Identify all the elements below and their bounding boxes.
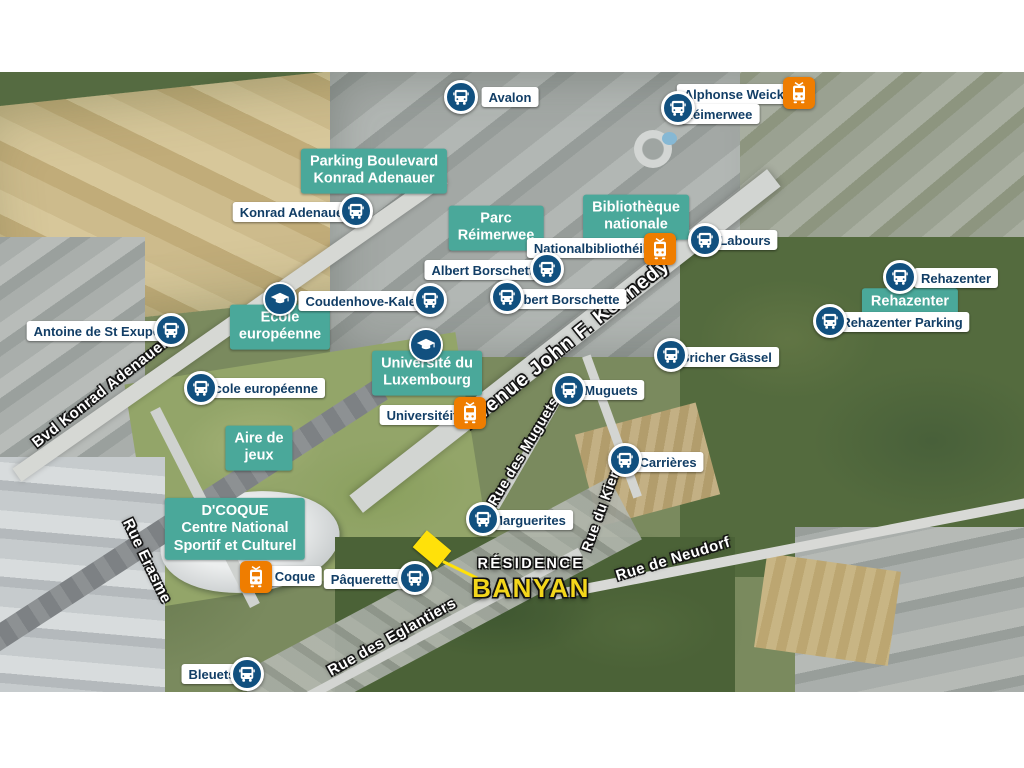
poi-label-bibliotheque-nationale: Bibliothèque nationale <box>583 195 689 240</box>
poi-line: Centre National <box>174 520 296 537</box>
bus-glyph <box>161 320 181 340</box>
poi-label-aire-de-jeux: Aire de jeux <box>225 426 292 471</box>
bus-icon-ecole-europeenne <box>184 371 218 405</box>
poi-line: Konrad Adenauer <box>310 171 438 188</box>
satellite-map: Bvd Konrad Adenauer Rue Erasme Avenue Jo… <box>0 72 1024 692</box>
bus-glyph <box>559 380 579 400</box>
bus-stop-label-rehazenter: Rehazenter <box>914 268 998 288</box>
bus-glyph <box>537 259 557 279</box>
tram-icon-coque <box>240 561 272 593</box>
bus-stop-label-muguets: Muguets <box>577 380 644 400</box>
poi-line: Parking Boulevard <box>310 154 438 171</box>
bus-icon-avalon <box>444 80 478 114</box>
tram-icon-alphonse-weicker <box>783 77 815 109</box>
tram-glyph <box>648 237 672 261</box>
bus-glyph <box>615 450 635 470</box>
bus-icon-antoine-st-exupery <box>154 313 188 347</box>
tram-icon-nationalbibliotheik <box>644 233 676 265</box>
bus-icon-coudenhove-kalergi <box>413 283 447 317</box>
poi-line: européenne <box>239 327 321 344</box>
bus-icon-rehazenter <box>883 260 917 294</box>
bus-glyph <box>346 201 366 221</box>
screenshot-stage: Bvd Konrad Adenauer Rue Erasme Avenue Jo… <box>0 0 1024 768</box>
graduation-cap-icon-universite <box>409 328 443 362</box>
graduation-cap-icon-ecole <box>263 282 297 316</box>
bus-stop-label-labours: Labours <box>712 230 777 250</box>
bus-glyph <box>405 568 425 588</box>
bus-glyph <box>820 311 840 331</box>
residence-line1: RÉSIDENCE <box>472 556 590 572</box>
tram-stop-label-coque: Coque <box>268 566 322 586</box>
bus-glyph <box>473 509 493 529</box>
bus-glyph <box>497 287 517 307</box>
poi-line: D'COQUE <box>174 503 296 520</box>
bus-icon-bricher-gassel <box>654 338 688 372</box>
residence-banyan-label: RÉSIDENCE BANYAN <box>472 556 590 604</box>
graduation-cap-glyph <box>269 288 291 310</box>
bus-icon-albert-borschette-1 <box>530 252 564 286</box>
poi-line: Parc <box>458 211 535 228</box>
tram-stop-label-universiteit: Universitéit <box>380 405 465 425</box>
tram-icon-universiteit <box>454 397 486 429</box>
bus-icon-konrad-adenauer <box>339 194 373 228</box>
poi-line: Bibliothèque <box>592 200 680 217</box>
bus-icon-bleuets <box>230 657 264 691</box>
residence-line2: BANYAN <box>472 573 590 604</box>
poi-line: Aire de <box>234 431 283 448</box>
poi-line: Rehazenter <box>871 293 949 310</box>
poi-line: Luxembourg <box>381 373 473 390</box>
bus-glyph <box>451 87 471 107</box>
tram-glyph <box>244 565 268 589</box>
tram-glyph <box>787 81 811 105</box>
bus-stop-label-bricher-gassel: Bricher Gässel <box>673 347 779 367</box>
bus-glyph <box>695 230 715 250</box>
bus-glyph <box>420 290 440 310</box>
bus-stop-label-rehazenter-parking: Rehazenter Parking <box>834 312 969 332</box>
poi-line: nationale <box>592 217 680 234</box>
bus-icon-marguerites <box>466 502 500 536</box>
region-forest-east <box>680 237 1024 577</box>
bus-icon-carrieres <box>608 443 642 477</box>
bus-glyph <box>890 267 910 287</box>
poi-line: Réimerwee <box>458 228 535 245</box>
poi-line: jeux <box>234 448 283 465</box>
tram-glyph <box>458 401 482 425</box>
bus-icon-rehazenter-parking <box>813 304 847 338</box>
poi-label-dcoque: D'COQUE Centre National Sportif et Cultu… <box>165 498 305 560</box>
bus-icon-albert-borschette-2 <box>490 280 524 314</box>
bus-icon-muguets <box>552 373 586 407</box>
bus-icon-labours <box>688 223 722 257</box>
bus-glyph <box>191 378 211 398</box>
region-pond <box>662 132 677 145</box>
bus-glyph <box>668 98 688 118</box>
poi-line: Sportif et Culturel <box>174 538 296 555</box>
poi-label-parking-boulevard: Parking Boulevard Konrad Adenauer <box>301 149 447 194</box>
bus-stop-label-konrad-adenauer: Konrad Adenauer <box>233 202 356 222</box>
bus-stop-label-carrieres: Carrières <box>632 452 703 472</box>
bus-glyph <box>661 345 681 365</box>
bus-icon-paquerettes <box>398 561 432 595</box>
bus-stop-label-avalon: Avalon <box>482 87 539 107</box>
bus-icon-alphonse-weicker <box>661 91 695 125</box>
bus-glyph <box>237 664 257 684</box>
region-field-southeast <box>754 553 901 666</box>
graduation-cap-glyph <box>415 334 437 356</box>
